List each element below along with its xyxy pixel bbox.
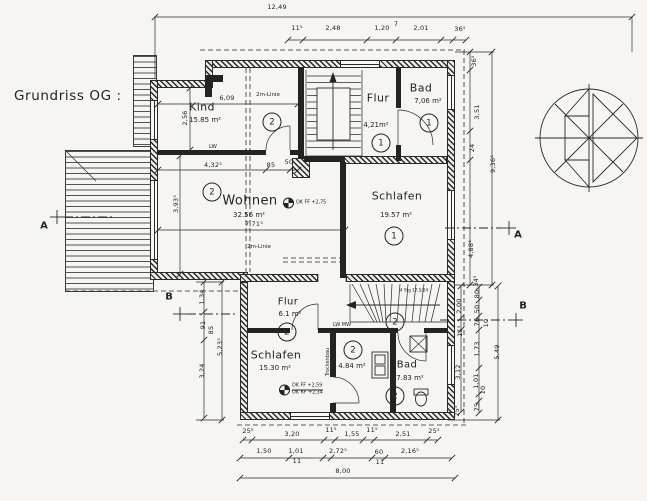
- room-name-label: Bad: [410, 82, 432, 95]
- dimension-label: 80: [473, 290, 481, 299]
- dimension-label: 3,51: [473, 104, 481, 119]
- dimension-label: 2,16⁵: [401, 447, 419, 455]
- level-marker-icon: [279, 385, 290, 396]
- level-marker-icon: [283, 198, 294, 209]
- annotation-label: Trockenbau: [325, 348, 331, 376]
- section-marker-label: A: [514, 230, 522, 241]
- dimension-label: 6,09: [219, 94, 234, 102]
- room-name-label: Flur: [367, 92, 389, 105]
- annotation-label: 2m-Linie: [247, 244, 271, 250]
- room-area-label: 15.30 m²: [259, 364, 291, 372]
- dimension-label: 11⁵: [325, 426, 336, 434]
- dimension-label: 75: [473, 403, 481, 412]
- north-arrow-icon: [535, 84, 643, 192]
- section-marker-label: B: [519, 301, 527, 312]
- room-area-label: 6.1 m²: [279, 310, 302, 318]
- level-marker: OK FF +2,59OK RF +2,34: [279, 384, 323, 397]
- dimension-label: 5,49: [493, 344, 501, 359]
- dimension-label: 9,36⁵: [489, 155, 497, 173]
- dimension-label: 5,23⁵: [216, 338, 224, 356]
- room-name-label: Kind: [189, 101, 215, 114]
- room-area-label: 4,21m²: [363, 121, 388, 129]
- dimension-label: 10: [479, 386, 487, 395]
- room-number-badge: 1: [385, 227, 404, 246]
- dimension-label: 7: [394, 20, 398, 28]
- room-number-badge: 1: [420, 114, 439, 133]
- dimension-label: 25⁵: [428, 427, 439, 435]
- annotation-label: LW: [209, 144, 217, 150]
- dimension-label: 2,51: [395, 430, 410, 438]
- room-name-label: Schlafen: [251, 349, 302, 362]
- room-name-label: Flur: [278, 297, 299, 308]
- dimension-label: 50: [473, 305, 481, 314]
- room-area-label: 7.83 m²: [396, 374, 423, 382]
- dimension-label: 12,49: [267, 3, 287, 11]
- dimension-label: 2,48: [325, 24, 340, 32]
- dimension-label: 11⁵: [456, 325, 464, 336]
- dimension-label: 2,00: [455, 298, 463, 313]
- section-marker-label: B: [165, 292, 173, 303]
- dimension-label: 24: [468, 144, 476, 153]
- dimension-label: 36⁵: [470, 55, 478, 66]
- dimension-label: 11⁵: [366, 426, 377, 434]
- room-name-label: Wohnen: [222, 194, 277, 209]
- dimension-label: 11: [376, 458, 385, 466]
- dimension-label: 10: [482, 319, 490, 328]
- dimension-label: 85: [207, 326, 215, 335]
- dimension-label: 25⁵: [242, 427, 253, 435]
- dimension-label: 25⁵: [453, 405, 461, 416]
- dimension-label: 8,00: [335, 467, 350, 475]
- dimension-label: 2,56: [181, 110, 189, 125]
- room-number-badge: 2: [344, 341, 363, 360]
- annotation-label: 2m-Linie: [256, 92, 280, 98]
- dimension-label: 3,12: [454, 364, 462, 379]
- room-area-label: 7,06 m²: [414, 97, 441, 105]
- room-area-label: 15.85 m²: [189, 116, 221, 124]
- room-number-badge: 2: [386, 313, 405, 332]
- room-area-label: 4.84 m²: [338, 362, 365, 370]
- dimension-label: 3,20: [284, 430, 299, 438]
- room-name-label: Schlafen: [372, 190, 423, 203]
- dimension-label: 2,72⁵: [329, 447, 347, 455]
- dimension-label: 1,50: [256, 447, 271, 455]
- annotation-label: 4 Stg 17,5/24: [400, 288, 428, 293]
- dimension-label: 2,01: [413, 24, 428, 32]
- dimension-label: 50: [285, 158, 294, 166]
- dimension-label: 60: [375, 448, 384, 456]
- dimension-label: 11: [293, 457, 302, 465]
- room-number-badge: 2: [203, 183, 222, 202]
- room-area-label: 32.56 m²: [233, 211, 265, 219]
- room-name-label: Bad: [397, 360, 418, 371]
- plan-linework: [0, 0, 647, 501]
- dimension-label: 3,24: [198, 363, 206, 378]
- section-marker-label: A: [40, 221, 48, 232]
- room-number-badge: 1: [372, 134, 391, 153]
- dimension-label: 1,34: [198, 289, 206, 304]
- dimension-label: 1,55: [344, 430, 359, 438]
- dimension-label: 36⁵: [454, 25, 465, 33]
- dimension-label: 4,88⁵: [467, 240, 475, 258]
- level-marker: OK FF +2,75: [283, 198, 326, 209]
- dimension-label: 1,20: [374, 24, 389, 32]
- room-number-badge: 2: [386, 387, 405, 406]
- dimension-label: 85: [267, 161, 276, 169]
- dimension-label: 3,93⁵: [172, 195, 180, 213]
- annotation-label: LW MW: [333, 322, 351, 328]
- dimension-label: 76: [473, 318, 481, 327]
- dimension-label: 7,71⁵: [245, 220, 263, 228]
- room-area-label: 19.57 m²: [380, 211, 412, 219]
- room-number-badge: 2: [278, 323, 297, 342]
- dimension-label: 91: [199, 321, 207, 330]
- dimension-label: 1,01: [288, 447, 303, 455]
- dimension-label: 4,32⁵: [204, 161, 222, 169]
- dimension-label: 34⁵: [472, 275, 480, 286]
- room-number-badge: 2: [263, 113, 282, 132]
- dimension-label: 11⁵: [291, 24, 302, 32]
- level-marker-text: OK FF +2,75: [296, 200, 326, 206]
- dimension-label: 1,73: [473, 341, 481, 356]
- level-marker-text: OK FF +2,59OK RF +2,34: [292, 384, 323, 397]
- floorplan-canvas: Grundriss OG : Kind15.85 m²2Flur4,21m²1B…: [0, 0, 647, 501]
